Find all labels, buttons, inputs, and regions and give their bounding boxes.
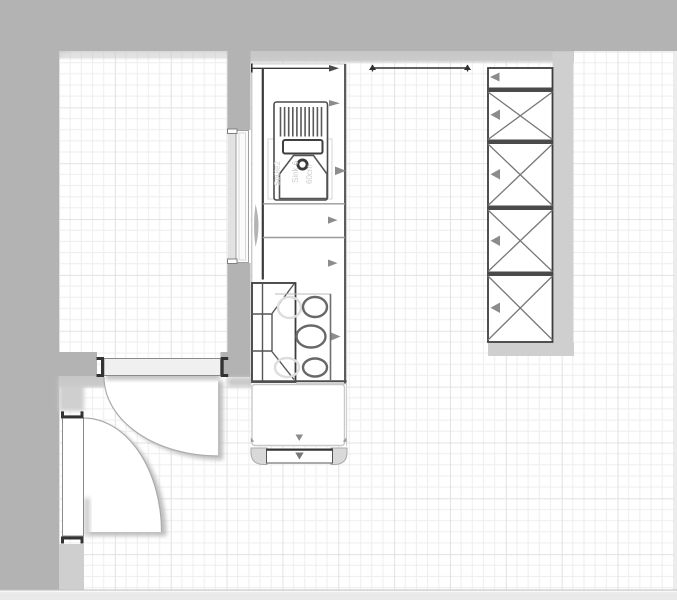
svg-text:Sink 6: Sink 6 [291, 160, 300, 183]
svg-text:Spüle2: Spüle2 [273, 161, 282, 186]
svg-text:60cm: 60cm [305, 164, 314, 184]
